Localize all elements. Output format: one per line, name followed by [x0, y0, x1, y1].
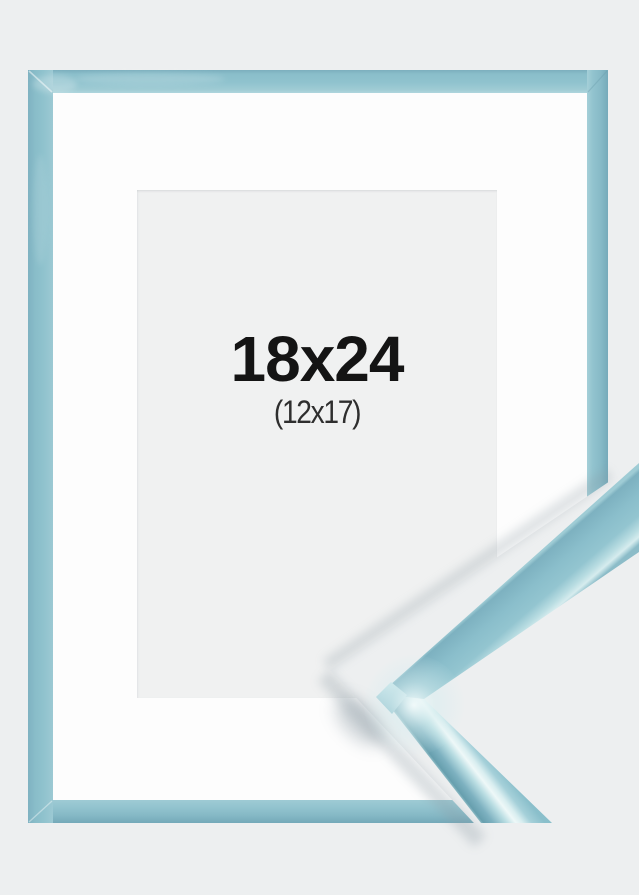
frame-product-image: 18x24 (12x17): [0, 0, 639, 895]
frame-edge-top: [28, 70, 608, 93]
size-label: 18x24: [137, 327, 497, 391]
frame-edge-left: [28, 70, 53, 823]
mat-board: 18x24 (12x17): [53, 93, 587, 800]
frame-edge-right: [587, 70, 608, 823]
inner-size-label: (12x17): [159, 396, 476, 428]
frame-edge-bottom: [28, 800, 608, 823]
picture-frame: 18x24 (12x17): [28, 70, 608, 823]
picture-area: 18x24 (12x17): [137, 190, 497, 698]
